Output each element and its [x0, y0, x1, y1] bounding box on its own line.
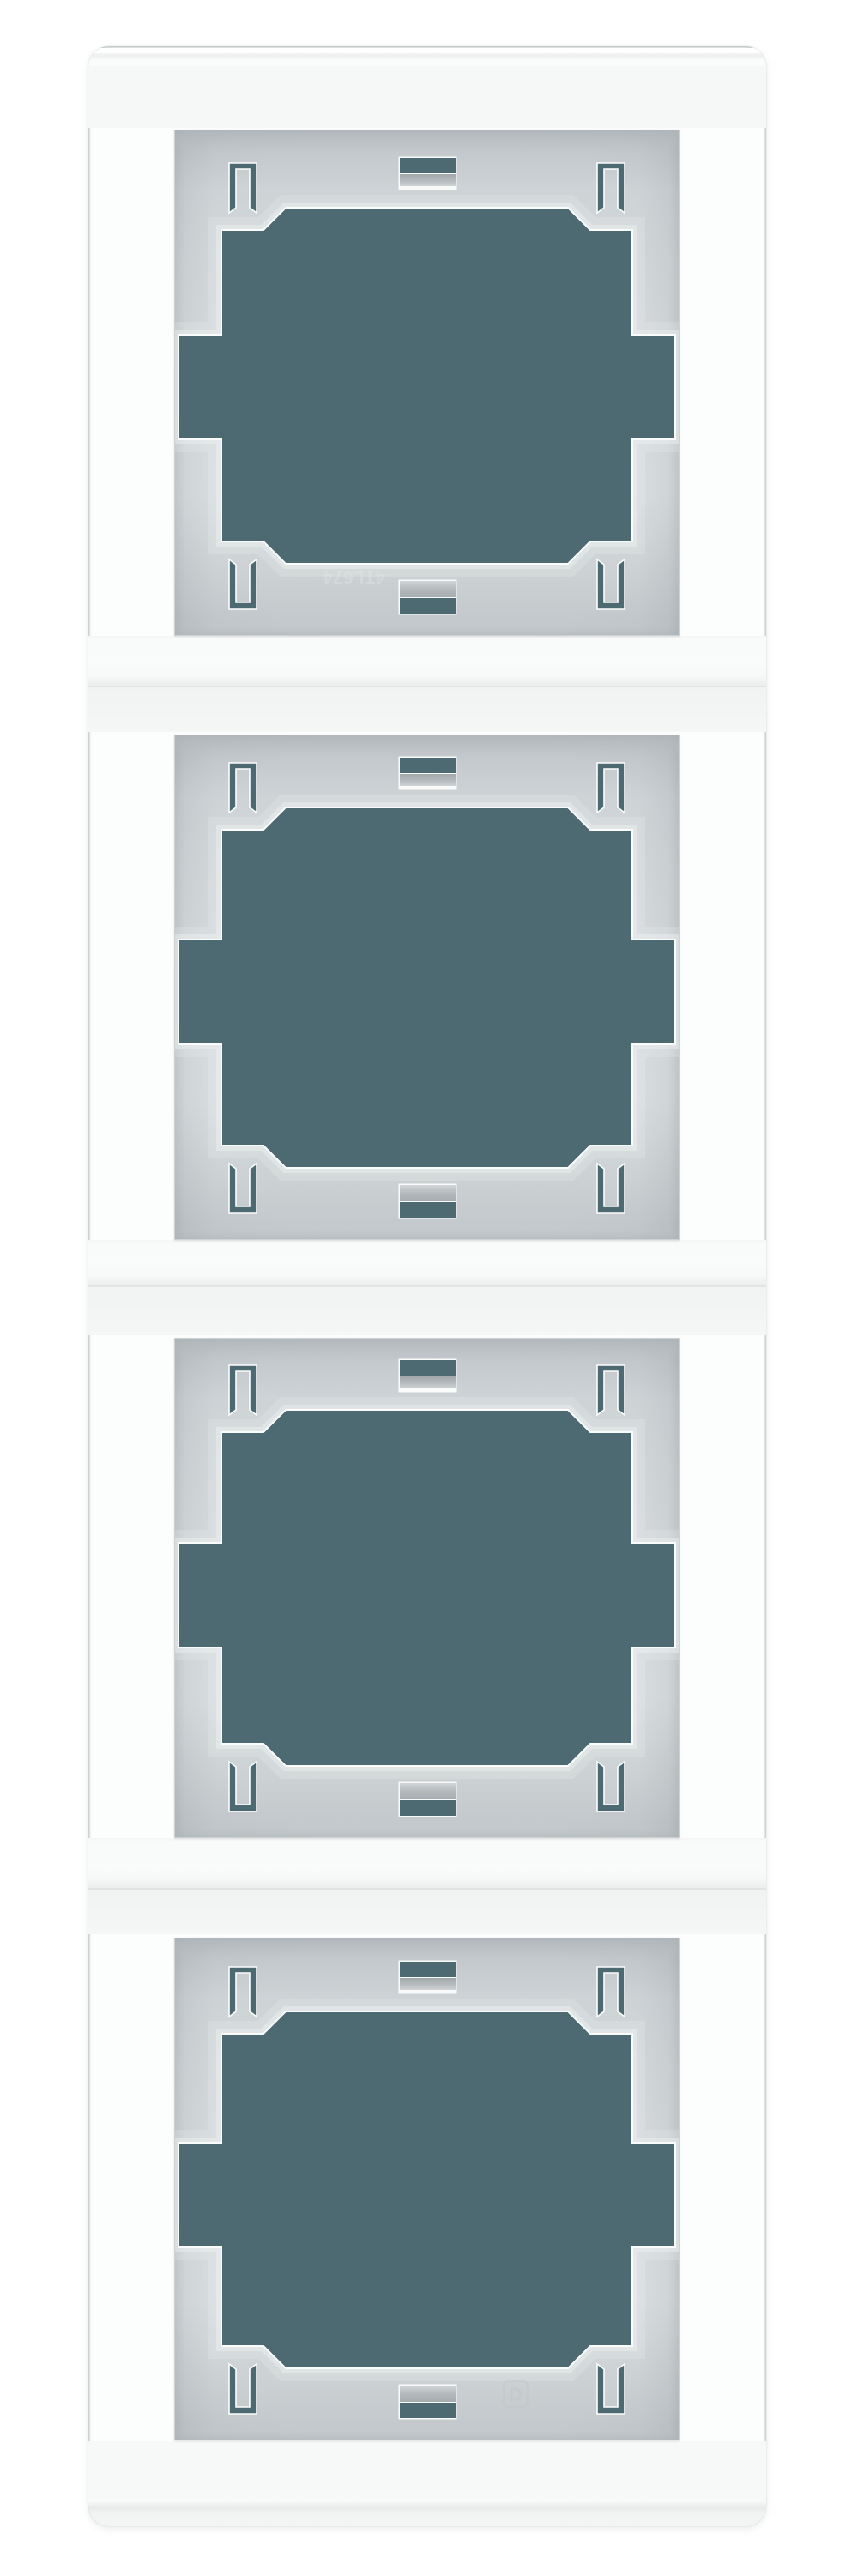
svg-text:D: D [509, 2384, 523, 2405]
svg-text:4TL674: 4TL674 [323, 567, 385, 587]
